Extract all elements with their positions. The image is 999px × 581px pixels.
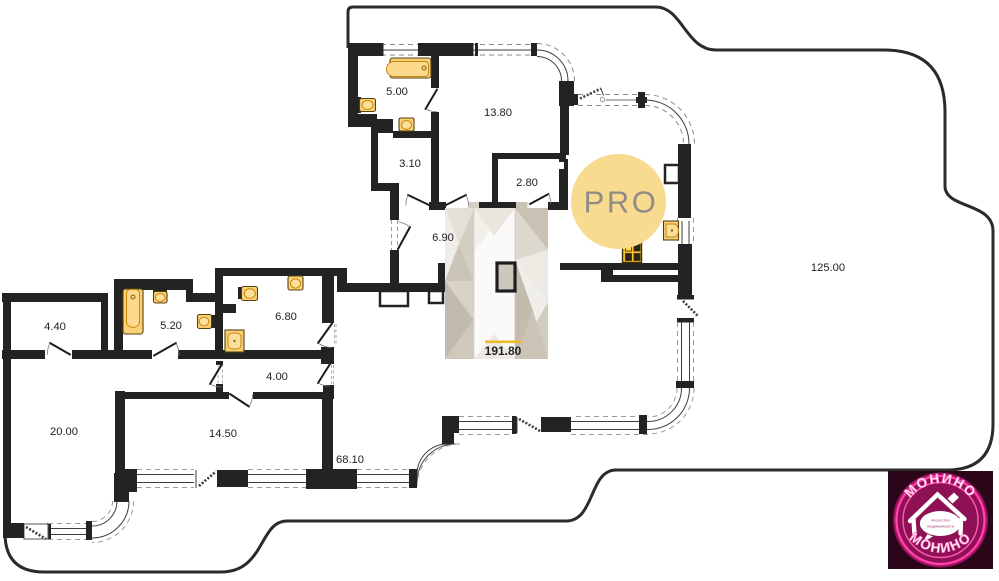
- svg-text:125.00: 125.00: [811, 262, 845, 274]
- svg-text:13.80: 13.80: [484, 107, 512, 119]
- svg-text:14.50: 14.50: [209, 428, 237, 440]
- svg-text:5.20: 5.20: [160, 320, 182, 332]
- svg-text:191.80: 191.80: [485, 344, 522, 358]
- svg-text:6.80: 6.80: [275, 311, 297, 323]
- svg-text:4.40: 4.40: [44, 321, 66, 333]
- svg-text:недвижимости: недвижимости: [927, 524, 954, 529]
- svg-text:PRO: PRO: [584, 185, 659, 220]
- svg-text:2.80: 2.80: [516, 177, 538, 189]
- svg-text:68.10: 68.10: [336, 454, 364, 466]
- svg-text:6.90: 6.90: [432, 232, 454, 244]
- svg-text:4.00: 4.00: [266, 371, 288, 383]
- svg-text:Агентство: Агентство: [931, 518, 950, 523]
- svg-text:3.10: 3.10: [399, 158, 421, 170]
- svg-text:5.00: 5.00: [386, 86, 408, 98]
- svg-text:20.00: 20.00: [50, 426, 78, 438]
